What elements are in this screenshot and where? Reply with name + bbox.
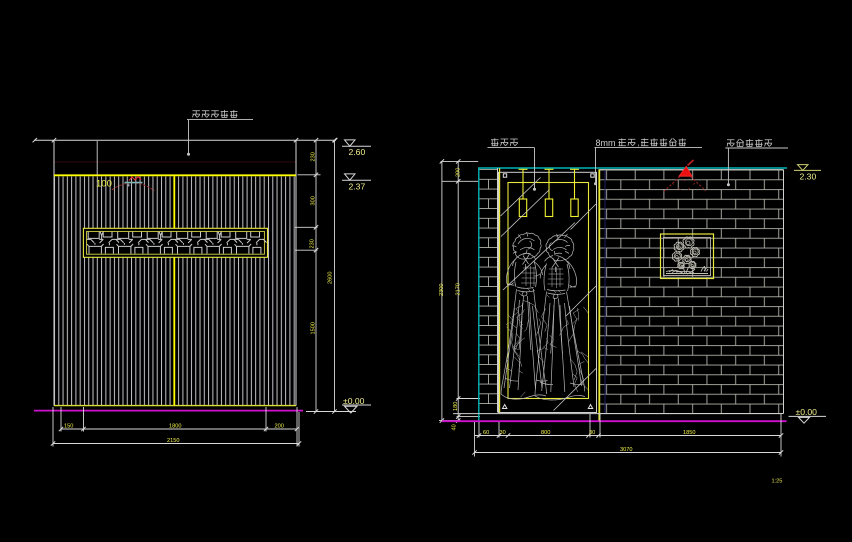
svg-text:2300: 2300 <box>439 284 445 296</box>
svg-text:2.37: 2.37 <box>349 181 366 191</box>
svg-text:100: 100 <box>96 179 112 190</box>
svg-text:±0.00: ±0.00 <box>796 407 818 417</box>
svg-text:150: 150 <box>64 423 73 429</box>
svg-text:1:25: 1:25 <box>772 479 783 485</box>
svg-text:±0.00: ±0.00 <box>343 396 365 406</box>
svg-text:180: 180 <box>453 402 459 411</box>
svg-text:1850: 1850 <box>683 430 695 436</box>
svg-text:30: 30 <box>589 430 595 436</box>
svg-text:,: , <box>638 139 640 148</box>
svg-text:2170: 2170 <box>455 283 461 295</box>
svg-text:30: 30 <box>500 430 506 436</box>
svg-text:3070: 3070 <box>620 447 632 453</box>
svg-text:2.30: 2.30 <box>800 172 817 182</box>
svg-text:60: 60 <box>483 430 489 436</box>
svg-text:300: 300 <box>311 196 317 205</box>
svg-text:800: 800 <box>541 430 550 436</box>
svg-text:230: 230 <box>310 239 316 248</box>
svg-text:1500: 1500 <box>311 322 317 334</box>
svg-text:230: 230 <box>311 152 317 161</box>
svg-text:200: 200 <box>275 423 284 429</box>
svg-text:8mm: 8mm <box>596 138 616 148</box>
svg-text:40: 40 <box>451 424 457 430</box>
svg-text:2150: 2150 <box>167 438 179 444</box>
svg-text:200: 200 <box>455 168 461 177</box>
svg-text:2.60: 2.60 <box>349 147 366 157</box>
svg-text:1800: 1800 <box>169 423 181 429</box>
svg-text:2600: 2600 <box>328 272 334 284</box>
